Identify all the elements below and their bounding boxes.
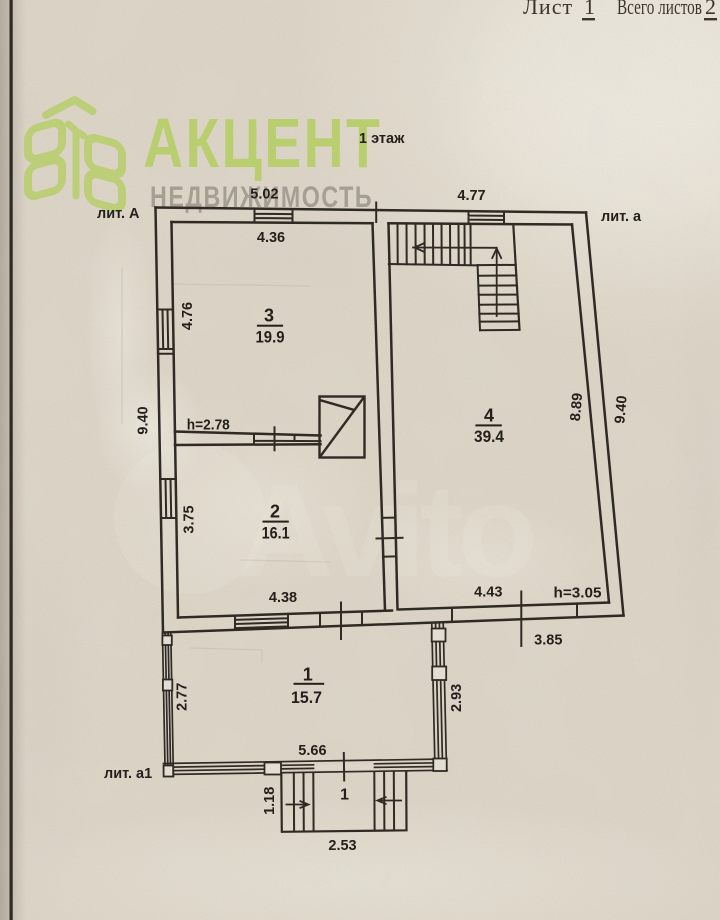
svg-text:9.40: 9.40 [136,406,152,434]
svg-text:9.40: 9.40 [612,395,630,425]
svg-text:4.77: 4.77 [457,188,485,204]
svg-text:лит. а1: лит. а1 [104,766,152,782]
svg-text:39.4: 39.4 [474,427,504,446]
svg-text:2.77: 2.77 [175,683,191,711]
svg-text:1: 1 [340,787,349,804]
svg-text:АКЦЕНТ: АКЦЕНТ [143,105,382,183]
svg-text:Лист: Лист [523,0,573,19]
svg-text:1.18: 1.18 [262,787,278,815]
svg-text:лит. А: лит. А [97,206,140,222]
svg-text:лит. а: лит. а [601,209,642,225]
svg-text:2.53: 2.53 [328,838,356,854]
svg-text:5.66: 5.66 [298,743,326,759]
svg-text:2.93: 2.93 [449,684,465,712]
svg-text:2: 2 [270,502,280,522]
svg-text:5.02: 5.02 [250,187,278,203]
svg-text:3: 3 [264,306,274,326]
svg-text:3.75: 3.75 [182,505,198,533]
svg-text:3.85: 3.85 [534,633,562,649]
svg-text:4.76: 4.76 [180,302,196,330]
svg-text:4.38: 4.38 [269,590,297,606]
svg-text:4.36: 4.36 [257,230,285,246]
svg-text:2: 2 [705,0,716,19]
svg-text:8.89: 8.89 [568,392,586,422]
svg-text:Всего листов: Всего листов [617,0,702,19]
svg-text:1 этаж: 1 этаж [359,131,405,147]
svg-text:4: 4 [484,406,494,426]
svg-text:4.43: 4.43 [474,585,502,601]
svg-text:h=2.78: h=2.78 [187,417,230,433]
svg-text:1: 1 [584,0,595,19]
svg-text:19.9: 19.9 [256,328,285,347]
svg-text:h=3.05: h=3.05 [554,585,602,601]
svg-text:15.7: 15.7 [291,688,322,707]
svg-text:16.1: 16.1 [262,523,290,542]
svg-text:1: 1 [303,665,313,685]
